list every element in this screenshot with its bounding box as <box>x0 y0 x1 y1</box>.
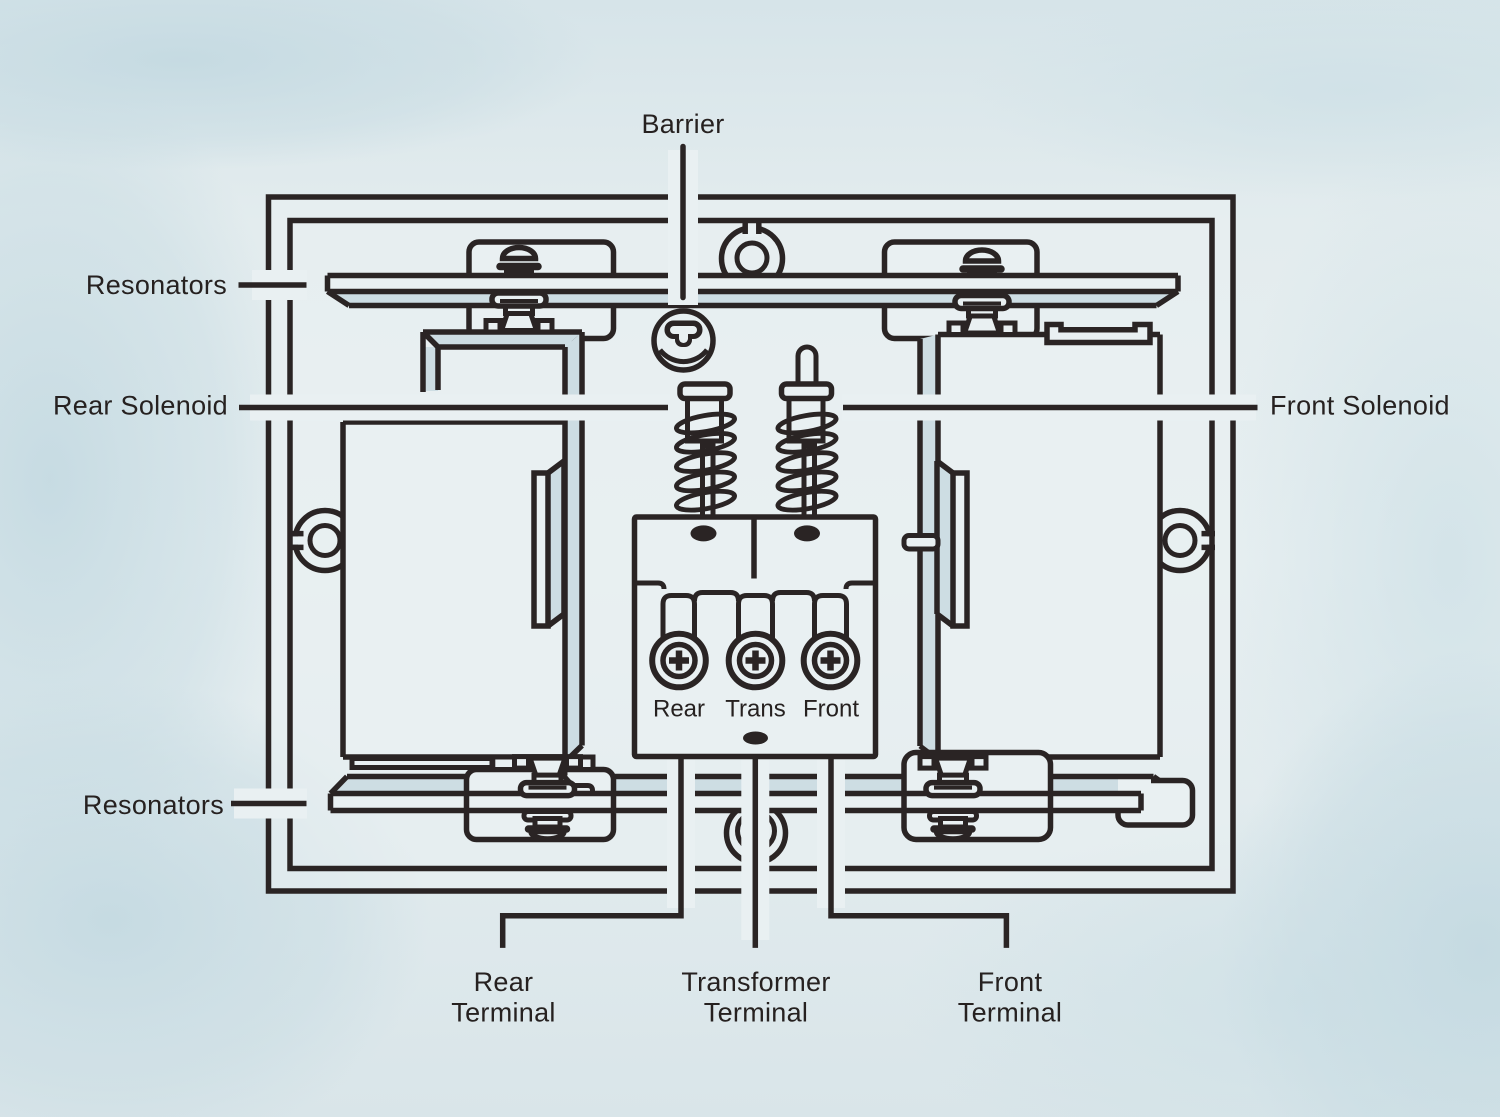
svg-text:Terminal: Terminal <box>704 998 808 1028</box>
svg-text:Terminal: Terminal <box>451 998 555 1028</box>
svg-text:Rear: Rear <box>653 696 705 723</box>
svg-text:Resonators: Resonators <box>86 270 227 300</box>
svg-text:Trans: Trans <box>725 696 785 723</box>
svg-text:Transformer: Transformer <box>681 967 830 997</box>
svg-text:Front: Front <box>978 967 1043 997</box>
svg-text:Resonators: Resonators <box>83 790 224 820</box>
svg-text:Rear Solenoid: Rear Solenoid <box>53 391 228 421</box>
svg-text:Front: Front <box>803 696 859 723</box>
svg-text:Barrier: Barrier <box>641 109 724 139</box>
svg-text:Front Solenoid: Front Solenoid <box>1270 391 1450 421</box>
svg-text:Rear: Rear <box>474 967 534 997</box>
svg-text:Terminal: Terminal <box>958 998 1062 1028</box>
